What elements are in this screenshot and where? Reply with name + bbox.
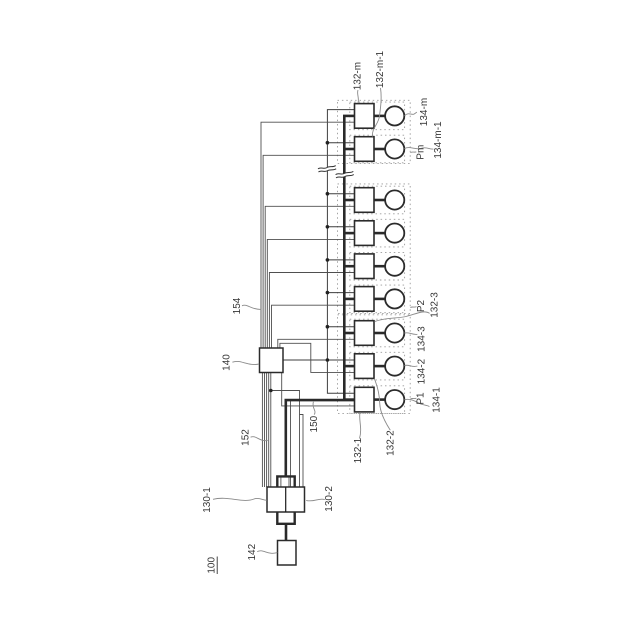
svg-text:Pm: Pm: [416, 145, 427, 160]
svg-text:130-2: 130-2: [324, 486, 335, 512]
svg-text:134-m-1: 134-m-1: [433, 121, 444, 159]
svg-text:132-m: 132-m: [353, 62, 364, 90]
svg-text:134-1: 134-1: [432, 387, 443, 413]
svg-text:134-3: 134-3: [416, 326, 427, 352]
svg-text:132-3: 132-3: [429, 292, 440, 318]
svg-text:142: 142: [247, 543, 258, 560]
svg-text:132-1: 132-1: [353, 437, 364, 463]
svg-text:130-1: 130-1: [202, 487, 213, 513]
svg-text:150: 150: [309, 415, 320, 432]
svg-text:P1: P1: [416, 392, 427, 405]
svg-text:152: 152: [240, 429, 251, 446]
svg-text:134-m: 134-m: [419, 98, 430, 126]
svg-text:140: 140: [222, 354, 233, 371]
svg-text:134-2: 134-2: [416, 358, 427, 384]
svg-text:154: 154: [232, 297, 243, 314]
svg-text:132-m-1: 132-m-1: [375, 50, 386, 88]
svg-text:100: 100: [207, 557, 218, 574]
svg-text:P2: P2: [416, 299, 427, 312]
svg-text:132-2: 132-2: [386, 430, 397, 456]
